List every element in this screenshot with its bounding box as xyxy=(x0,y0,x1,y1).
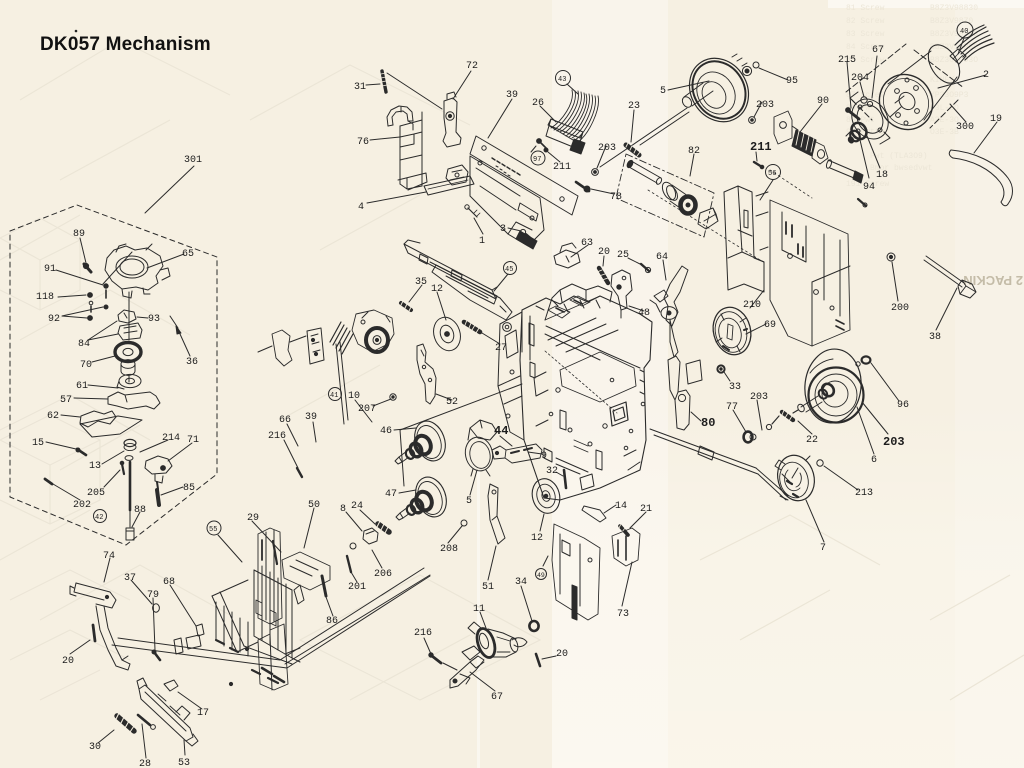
svg-text:76: 76 xyxy=(357,137,369,148)
svg-text:211: 211 xyxy=(553,162,571,173)
svg-text:204: 204 xyxy=(851,73,869,84)
svg-text:203: 203 xyxy=(883,435,905,449)
svg-text:28: 28 xyxy=(139,759,151,768)
svg-text:301: 301 xyxy=(184,155,202,166)
svg-text:216: 216 xyxy=(414,628,432,639)
svg-text:10: 10 xyxy=(348,391,360,402)
svg-text:77: 77 xyxy=(726,402,738,413)
svg-text:79: 79 xyxy=(147,590,159,601)
svg-text:85: 85 xyxy=(183,483,195,494)
svg-text:22: 22 xyxy=(806,435,818,446)
svg-text:65: 65 xyxy=(182,249,194,260)
svg-text:63: 63 xyxy=(581,238,593,249)
svg-text:27: 27 xyxy=(495,343,507,354)
svg-text:11: 11 xyxy=(473,604,485,615)
svg-text:YP33O9P3: YP33O9P3 xyxy=(930,91,969,100)
svg-text:62: 62 xyxy=(47,411,59,422)
svg-text:66: 66 xyxy=(279,415,291,426)
svg-text:41: 41 xyxy=(330,392,338,400)
svg-text:300: 300 xyxy=(956,122,974,133)
svg-text:205: 205 xyxy=(87,488,105,499)
svg-text:30: 30 xyxy=(89,742,101,753)
svg-text:80: 80 xyxy=(701,416,715,430)
svg-text:18: 18 xyxy=(876,170,888,181)
svg-text:12: 12 xyxy=(431,284,443,295)
svg-text:36: 36 xyxy=(186,357,198,368)
svg-text:32: 32 xyxy=(546,466,558,477)
svg-text:2 PACKIN: 2 PACKIN xyxy=(963,273,1023,288)
svg-text:39: 39 xyxy=(305,412,317,423)
svg-text:92: 92 xyxy=(48,314,60,325)
svg-text:94: 94 xyxy=(863,182,875,193)
svg-text:8: 8 xyxy=(340,504,346,515)
svg-text:4: 4 xyxy=(358,202,364,213)
svg-text:56: 56 xyxy=(768,170,776,178)
svg-text:37: 37 xyxy=(124,573,136,584)
svg-text:72: 72 xyxy=(466,61,478,72)
svg-text:96: 96 xyxy=(897,400,909,411)
svg-text:84: 84 xyxy=(78,339,90,350)
svg-text:20: 20 xyxy=(62,656,74,667)
svg-text:118: 118 xyxy=(36,292,54,303)
svg-text:21: 21 xyxy=(640,504,652,515)
svg-text:12: 12 xyxy=(531,533,543,544)
svg-text:6: 6 xyxy=(871,455,877,466)
svg-text:46: 46 xyxy=(380,426,392,437)
svg-text:201: 201 xyxy=(348,582,366,593)
svg-text:34: 34 xyxy=(515,577,527,588)
svg-text:91: 91 xyxy=(44,264,56,275)
svg-text:52: 52 xyxy=(446,397,458,408)
svg-text:24: 24 xyxy=(351,501,363,512)
svg-text:83 Screw: 83 Screw xyxy=(846,30,885,39)
svg-text:48: 48 xyxy=(638,308,650,319)
svg-text:7: 7 xyxy=(820,543,826,554)
svg-text:213: 213 xyxy=(855,488,873,499)
svg-text:211: 211 xyxy=(750,140,772,154)
svg-text:95: 95 xyxy=(786,76,798,87)
svg-text:82 Screw: 82 Screw xyxy=(846,17,885,26)
svg-text:44: 44 xyxy=(494,424,508,438)
svg-text:68: 68 xyxy=(163,577,175,588)
svg-text:203: 203 xyxy=(756,100,774,111)
svg-text:40: 40 xyxy=(960,28,968,36)
svg-text:31: 31 xyxy=(354,82,366,93)
svg-text:5: 5 xyxy=(660,86,666,97)
svg-text:25: 25 xyxy=(617,250,629,261)
svg-text:9: 9 xyxy=(541,451,547,462)
svg-text:67: 67 xyxy=(872,45,884,56)
svg-text:B8Z3V98Z0: B8Z3V98Z0 xyxy=(930,17,973,26)
svg-text:1: 1 xyxy=(479,236,485,247)
svg-text:B8Z3V98830: B8Z3V98830 xyxy=(930,4,978,13)
svg-text:14: 14 xyxy=(615,501,627,512)
svg-text:208: 208 xyxy=(440,544,458,555)
svg-text:81 Screw: 81 Screw xyxy=(846,4,885,13)
svg-text:67: 67 xyxy=(491,692,503,703)
svg-text:20: 20 xyxy=(556,649,568,660)
svg-text:50: 50 xyxy=(308,500,320,511)
svg-text:23: 23 xyxy=(628,101,640,112)
svg-text:88: 88 xyxy=(134,505,146,516)
svg-text:29: 29 xyxy=(247,513,259,524)
svg-text:74: 74 xyxy=(103,551,115,562)
svg-text:42: 42 xyxy=(95,514,103,522)
svg-text:20: 20 xyxy=(598,247,610,258)
svg-text:214: 214 xyxy=(162,433,180,444)
svg-text:45: 45 xyxy=(505,266,513,274)
svg-text:207: 207 xyxy=(358,404,376,415)
svg-text:203: 203 xyxy=(750,392,768,403)
svg-text:55: 55 xyxy=(209,526,217,534)
svg-text:13: 13 xyxy=(89,461,101,472)
svg-text:17: 17 xyxy=(197,708,209,719)
svg-text:89: 89 xyxy=(73,229,85,240)
svg-text:DK057 Mechanism: DK057 Mechanism xyxy=(40,34,211,55)
svg-text:64: 64 xyxy=(656,252,668,263)
svg-text:39: 39 xyxy=(506,90,518,101)
svg-text:97: 97 xyxy=(533,156,541,164)
svg-text:90: 90 xyxy=(817,96,829,107)
svg-text:2: 2 xyxy=(983,70,989,81)
svg-text:15: 15 xyxy=(32,438,44,449)
svg-text:26: 26 xyxy=(532,98,544,109)
svg-text:49: 49 xyxy=(537,572,545,579)
svg-text:78: 78 xyxy=(610,192,622,203)
svg-text:38: 38 xyxy=(929,332,941,343)
svg-text:43: 43 xyxy=(558,76,566,84)
svg-text:216: 216 xyxy=(268,431,286,442)
svg-text:73: 73 xyxy=(617,609,629,620)
svg-text:61: 61 xyxy=(76,381,88,392)
svg-text:35: 35 xyxy=(415,277,427,288)
svg-text:215: 215 xyxy=(838,55,856,66)
svg-text:51: 51 xyxy=(482,582,494,593)
svg-text:53: 53 xyxy=(178,758,190,768)
svg-text:O3E-3B: O3E-3B xyxy=(930,128,959,137)
svg-text:19: 19 xyxy=(990,114,1002,125)
svg-text:93: 93 xyxy=(148,314,160,325)
svg-text:203: 203 xyxy=(598,143,616,154)
svg-text:210: 210 xyxy=(743,300,761,311)
svg-text:5: 5 xyxy=(466,496,472,507)
svg-text:3: 3 xyxy=(500,224,506,235)
svg-text:71: 71 xyxy=(187,435,199,446)
svg-text:202: 202 xyxy=(73,500,91,511)
svg-text:33: 33 xyxy=(729,382,741,393)
svg-text:69: 69 xyxy=(764,320,776,331)
svg-text:82: 82 xyxy=(688,146,700,157)
svg-text:206: 206 xyxy=(374,569,392,580)
svg-text:47: 47 xyxy=(385,489,397,500)
svg-text:57: 57 xyxy=(60,395,72,406)
svg-text:200: 200 xyxy=(891,303,909,314)
svg-text:Pwt (TLA3O9): Pwt (TLA3O9) xyxy=(870,152,928,161)
svg-text:70: 70 xyxy=(80,360,92,371)
svg-text:86: 86 xyxy=(326,616,338,627)
